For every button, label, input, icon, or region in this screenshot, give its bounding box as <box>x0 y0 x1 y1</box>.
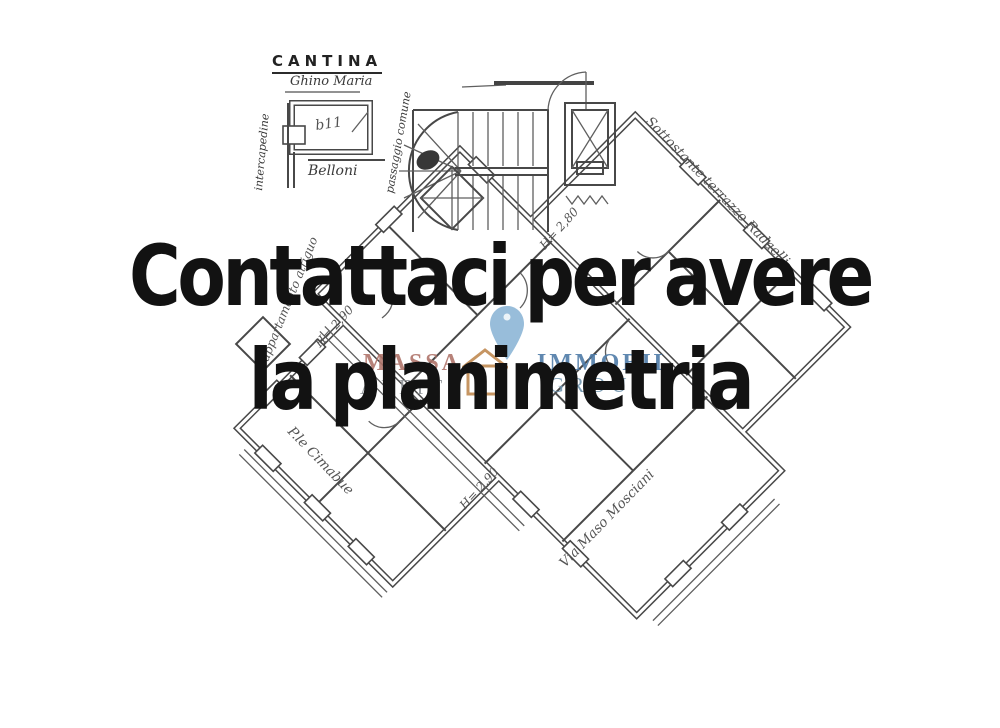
cantina-title: CANTINA <box>272 52 382 74</box>
cantina-name-below: Belloni <box>308 163 357 179</box>
annotation-bottom-right: Via Maso Mosciani <box>556 467 657 571</box>
headline-line1: Contattaci per avere <box>80 234 920 318</box>
elevator-shaft <box>565 103 615 204</box>
real-estate-teaser-image: b11 H= 2,90 H= 2,80 H= 2,90 Sottostante … <box>0 0 1000 728</box>
cantina-owner-name: Ghino Maria <box>290 74 372 89</box>
headline-line2: la planimetria <box>80 338 920 422</box>
stairwell-top-lines <box>462 83 594 87</box>
cantina-room-code: b11 <box>314 114 343 134</box>
